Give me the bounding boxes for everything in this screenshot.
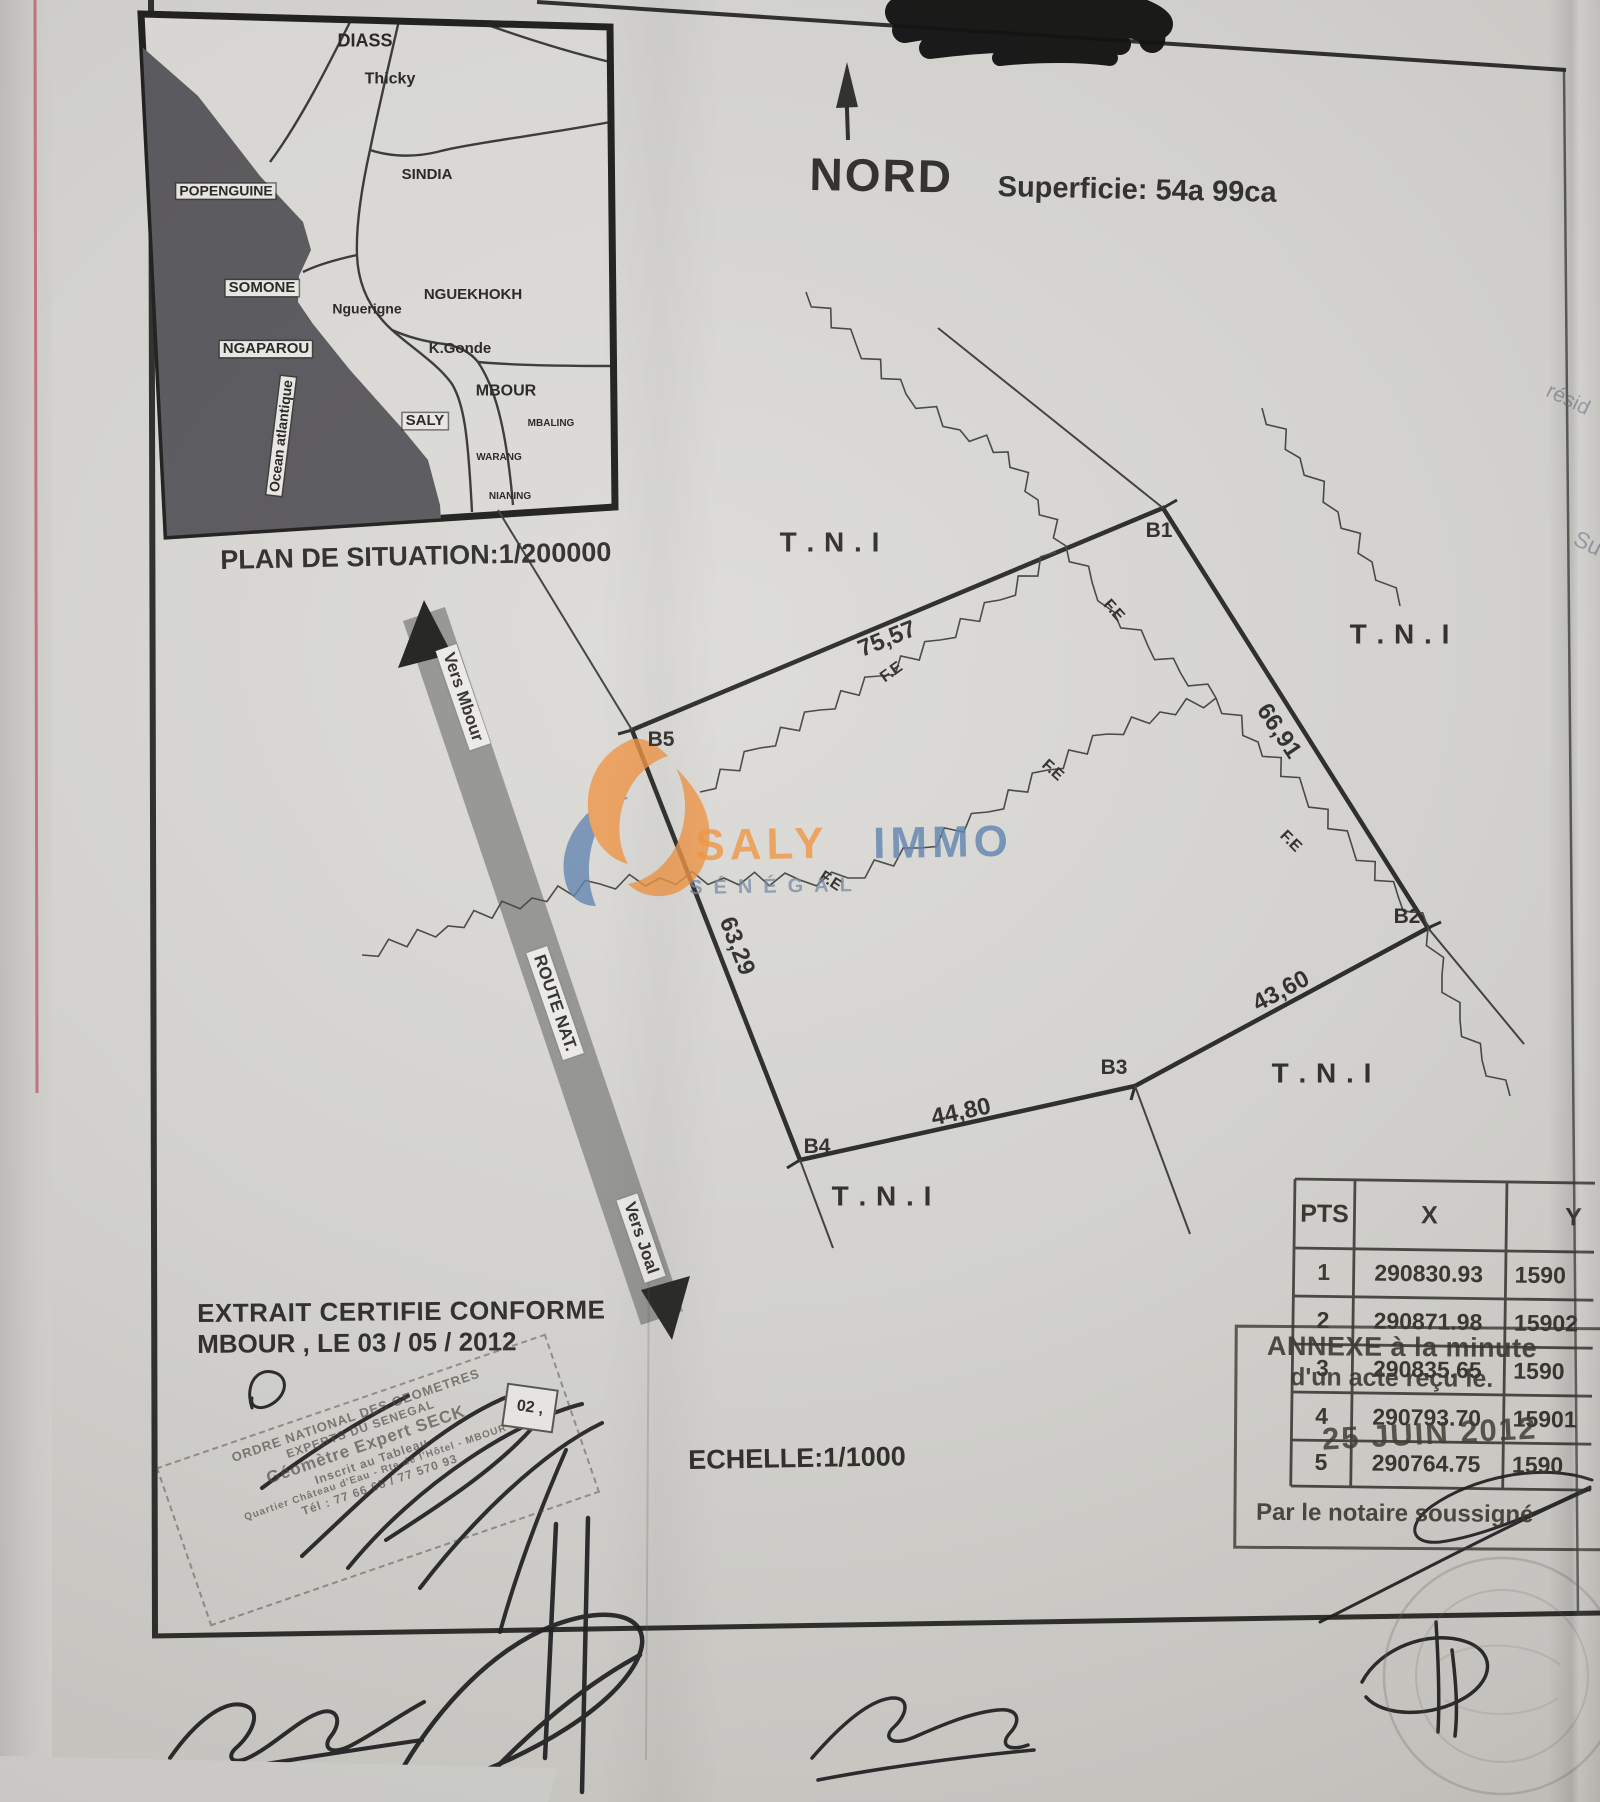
scanned-survey-document: PLAN DE SITUATION:1/200000 NORD Superfic…	[0, 0, 1600, 1802]
table-cell: 1590	[1514, 1262, 1566, 1290]
table-cell: 1	[1317, 1259, 1330, 1286]
table-cell: PTS	[1300, 1200, 1349, 1230]
annexe-line2: d'un acte reçu le.	[1290, 1363, 1493, 1394]
annexe-line1: ANNEXE à la minute	[1267, 1331, 1537, 1364]
table-cell: Y	[1565, 1203, 1582, 1232]
table-cell: 290830.93	[1374, 1260, 1483, 1289]
annexe-notaire: Par le notaire soussigné	[1256, 1499, 1534, 1529]
table-cell: X	[1421, 1201, 1438, 1230]
